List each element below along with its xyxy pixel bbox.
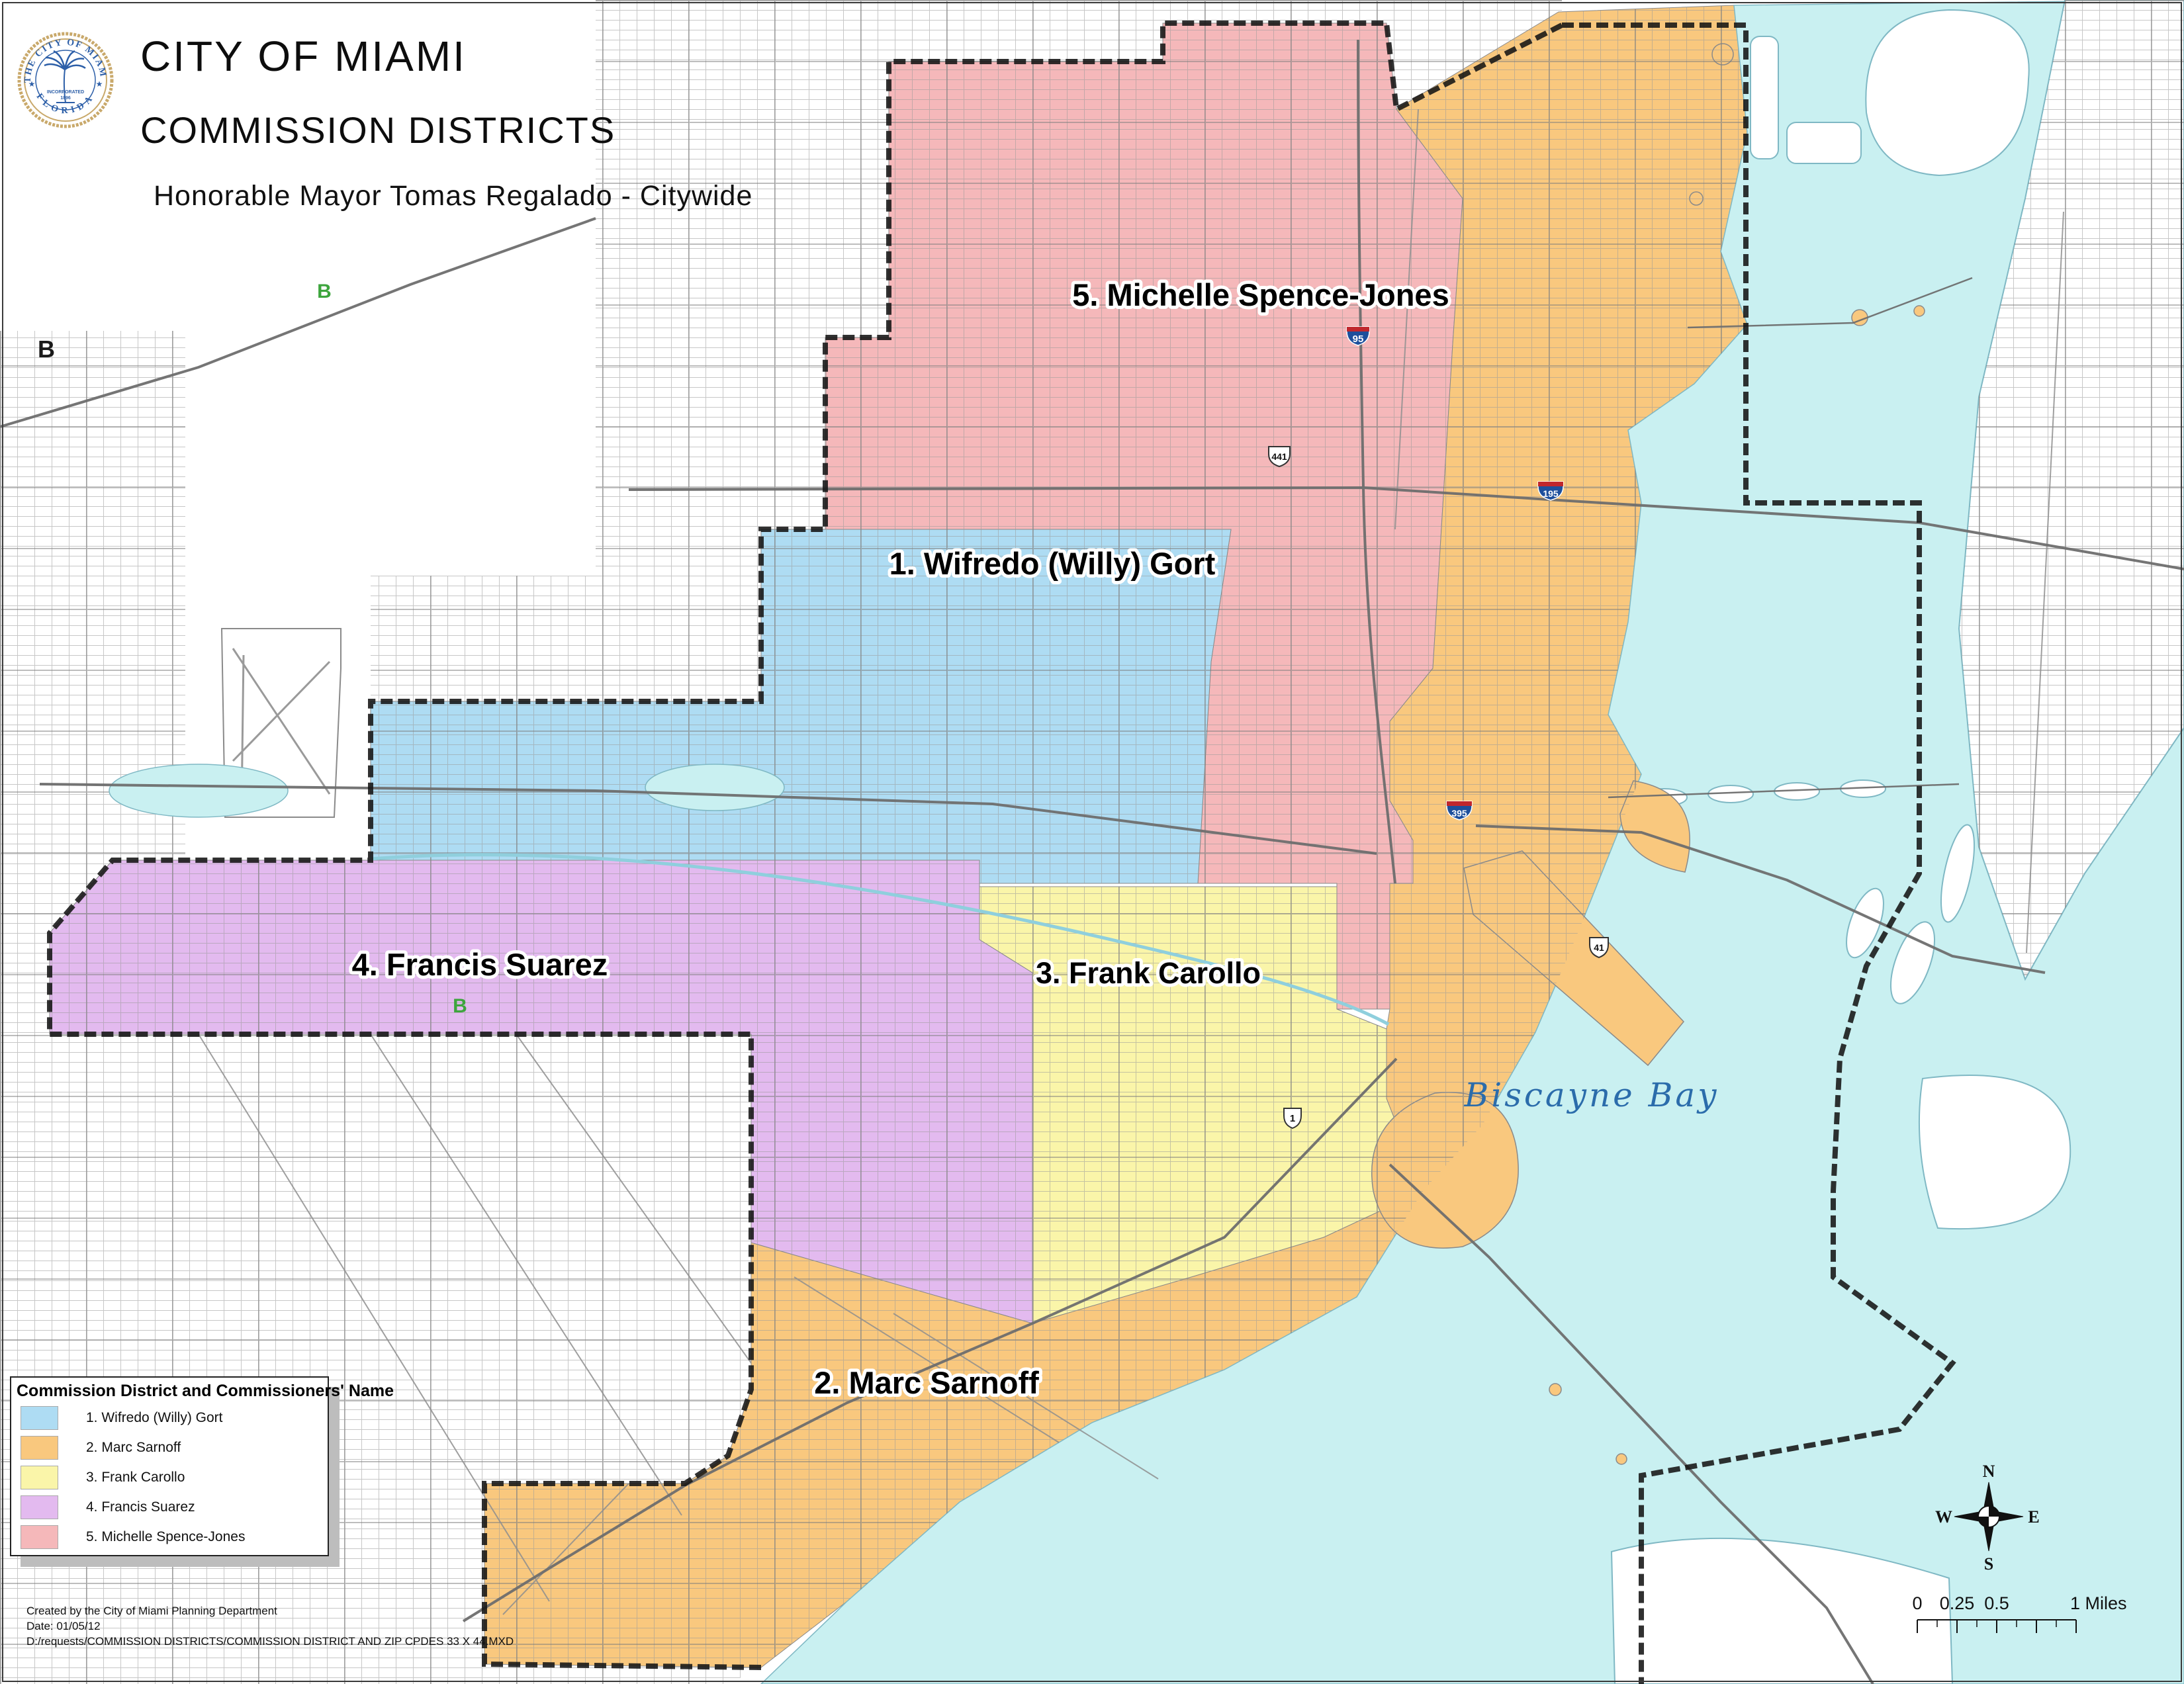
b-marker: B	[453, 995, 467, 1017]
legend-item-label: 4. Francis Suarez	[86, 1499, 195, 1515]
district-3-label: 3. Frank Carollo	[1036, 956, 1261, 990]
page-title: CITY OF MIAMI	[140, 32, 467, 81]
legend-swatch-district-3	[21, 1466, 58, 1489]
mayor-line: Honorable Mayor Tomas Regalado - Citywid…	[154, 180, 752, 212]
compass-n-label: N	[1983, 1462, 1995, 1481]
svg-text:441: 441	[1271, 451, 1287, 462]
legend-item-label: 5. Michelle Spence-Jones	[86, 1529, 245, 1545]
legend-swatch-district-5	[21, 1525, 58, 1549]
legend-swatch-district-1	[21, 1406, 58, 1430]
city-seal: THE CITY OF MIAMI FLORIDA ★ ★ INCORPORAT…	[17, 32, 114, 128]
compass-s-label: S	[1984, 1554, 1993, 1573]
district-5-label: 5. Michelle Spence-Jones	[1072, 277, 1449, 312]
credits-line-1: Created by the City of Miami Planning De…	[26, 1604, 514, 1619]
spoil-islet	[1549, 1384, 1561, 1396]
credits-line-3: D:/requests/COMMISSION DISTRICTS/COMMISS…	[26, 1634, 514, 1650]
scale-1mi-label: 1 Miles	[2070, 1593, 2127, 1613]
legend-swatch-district-4	[21, 1495, 58, 1519]
district-4-label: 4. Francis Suarez	[352, 947, 608, 982]
bay-islet	[1914, 306, 1925, 316]
legend-item-district-5: 5. Michelle Spence-Jones	[21, 1525, 328, 1550]
legend-item-district-4: 4. Francis Suarez	[21, 1495, 328, 1520]
compass-e-label: E	[2028, 1507, 2039, 1527]
legend-item-district-1: 1. Wifredo (Willy) Gort	[21, 1405, 328, 1431]
scale-0-label: 0	[1912, 1593, 1922, 1613]
svg-text:95: 95	[1353, 333, 1364, 345]
district-2-label: 2. Marc Sarnoff	[814, 1365, 1039, 1400]
compass-w-label: W	[1935, 1507, 1952, 1527]
seal-star-right: ★	[96, 79, 103, 89]
legend-item-district-3: 3. Frank Carollo	[21, 1465, 328, 1490]
b-marker: B	[38, 335, 55, 363]
seal-star-left: ★	[28, 79, 36, 89]
scale-05-label: 0.5	[1984, 1593, 2009, 1613]
normandy-isle-island	[1866, 10, 2028, 175]
seal-incorporated-text: INCORPORATED	[47, 90, 84, 95]
legend-swatch-district-2	[21, 1436, 58, 1460]
legend-item-label: 2. Marc Sarnoff	[86, 1440, 181, 1456]
fisher-island	[1919, 1075, 2070, 1229]
page-subtitle: COMMISSION DISTRICTS	[140, 109, 615, 152]
blue-lagoon-lake	[109, 764, 288, 817]
legend-box: Commission District and Commissioners' N…	[10, 1376, 329, 1556]
map-page: 95 195 395 441 41 1 B B B 5. M	[0, 0, 2184, 1684]
svg-text:1: 1	[1290, 1113, 1295, 1124]
legend-title: Commission District and Commissioners' N…	[17, 1382, 324, 1401]
legend-item-label: 1. Wifredo (Willy) Gort	[86, 1410, 223, 1426]
scale-025-label: 0.25	[1940, 1593, 1975, 1613]
spoil-islet	[1616, 1454, 1627, 1464]
credits-line-2: Date: 01/05/12	[26, 1619, 514, 1634]
legend-item-district-2: 2. Marc Sarnoff	[21, 1435, 328, 1460]
blue-lagoon-lake-east	[645, 764, 784, 811]
b-marker: B	[317, 281, 332, 302]
svg-text:41: 41	[1594, 942, 1604, 953]
district-1-label: 1. Wifredo (Willy) Gort	[889, 546, 1216, 581]
svg-text:395: 395	[1451, 808, 1467, 819]
biscayne-bay-label: Biscayne Bay	[1464, 1076, 1719, 1114]
credits-block: Created by the City of Miami Planning De…	[26, 1604, 514, 1650]
seal-year-text: 1896	[60, 96, 71, 101]
bay-island-treasure	[1787, 122, 1861, 163]
svg-text:195: 195	[1543, 488, 1559, 499]
bay-island-west-dr	[1751, 36, 1778, 159]
legend-item-label: 3. Frank Carollo	[86, 1470, 185, 1485]
